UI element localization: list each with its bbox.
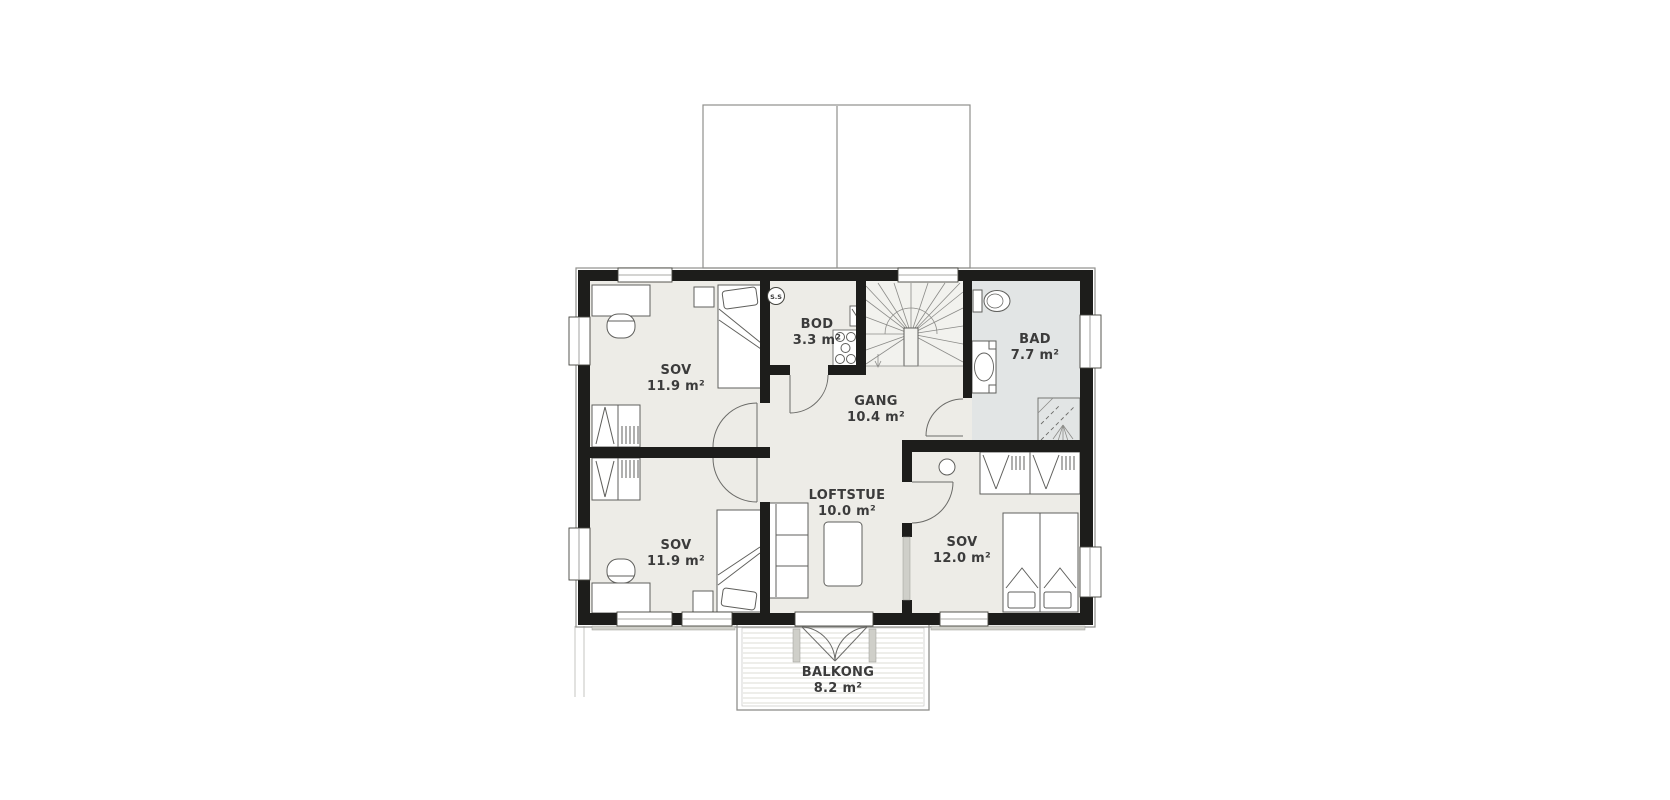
window bbox=[569, 528, 590, 580]
nightstand bbox=[694, 287, 714, 307]
room-area-sov-3: 12.0 m² bbox=[933, 551, 991, 566]
window bbox=[1080, 315, 1101, 368]
window bbox=[682, 612, 732, 626]
room-label-loftstue: LOFTSTUE bbox=[809, 488, 886, 503]
room-area-balkong: 8.2 m² bbox=[814, 681, 863, 696]
glass-panel bbox=[903, 537, 910, 600]
room-label-balkong: BALKONG bbox=[802, 665, 874, 680]
desk-chair bbox=[607, 559, 635, 583]
room-label-sov-1: SOV bbox=[660, 363, 691, 378]
ss-marker-label: S.S bbox=[770, 293, 782, 301]
wardrobe bbox=[592, 405, 640, 447]
window bbox=[569, 317, 590, 365]
window bbox=[940, 612, 988, 626]
room-label-sov-3: SOV bbox=[946, 535, 977, 550]
room-area-loftstue: 10.0 m² bbox=[818, 504, 876, 519]
room-label-bad: BAD bbox=[1019, 332, 1051, 347]
stair-newel bbox=[904, 328, 918, 366]
room-area-bad: 7.7 m² bbox=[1011, 348, 1060, 363]
pillow bbox=[1008, 592, 1035, 608]
desk bbox=[592, 285, 650, 316]
ceiling-lamp-symbol bbox=[939, 459, 955, 475]
ss-marker: S.S bbox=[768, 288, 785, 305]
wardrobe bbox=[592, 458, 640, 500]
room-label-sov-2: SOV bbox=[660, 538, 691, 553]
exterior-edge-lines bbox=[575, 626, 584, 697]
window bbox=[898, 268, 958, 282]
room-label-bod: BOD bbox=[801, 317, 834, 332]
window bbox=[1080, 547, 1101, 597]
sofa bbox=[768, 503, 808, 598]
room-area-sov-2: 11.9 m² bbox=[647, 554, 705, 569]
desk bbox=[592, 583, 650, 613]
pillow bbox=[1044, 592, 1071, 608]
plan-canvas: S.S SOV 11.9 m² BOD 3.3 m² GANG 10.4 m² … bbox=[0, 0, 1670, 800]
room-label-gang: GANG bbox=[854, 394, 897, 409]
room-area-sov-1: 11.9 m² bbox=[647, 379, 705, 394]
floor-plan: S.S SOV 11.9 m² BOD 3.3 m² GANG 10.4 m² … bbox=[0, 0, 1670, 800]
vanity-sink bbox=[972, 341, 996, 393]
window bbox=[617, 612, 672, 626]
room-area-gang: 10.4 m² bbox=[847, 410, 905, 425]
room-area-bod: 3.3 m² bbox=[793, 333, 842, 348]
window bbox=[618, 268, 672, 282]
desk-chair bbox=[607, 314, 635, 338]
coffee-table bbox=[824, 522, 862, 586]
toilet bbox=[973, 290, 1010, 312]
nightstand bbox=[693, 591, 713, 612]
roof-outline bbox=[703, 105, 970, 268]
